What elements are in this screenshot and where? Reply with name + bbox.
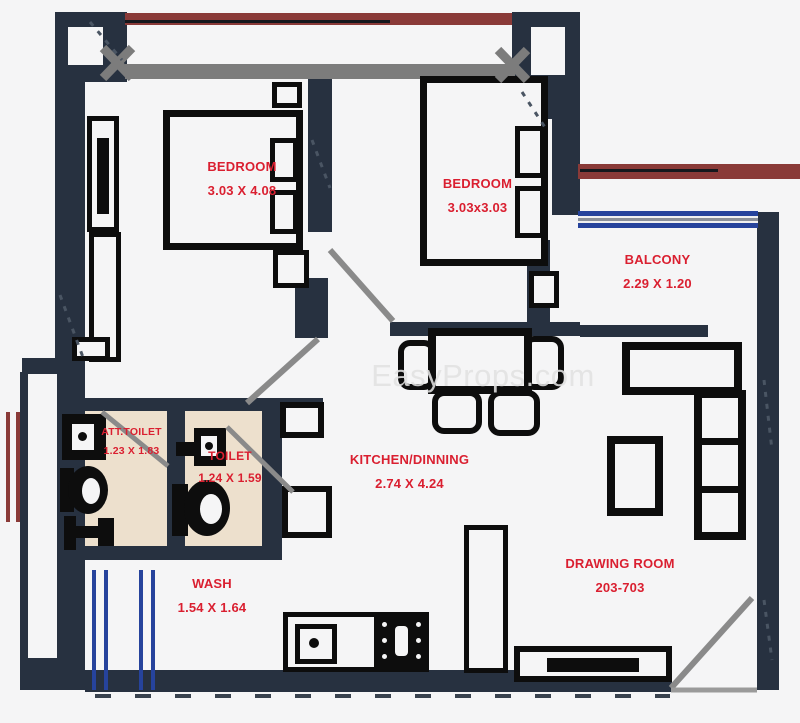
hall-door-swing [247, 339, 318, 403]
bedroom1-headboard-box [272, 82, 302, 108]
wall-toilets-bottom [85, 546, 282, 560]
dining-chair-bottom-2 [488, 390, 540, 436]
room-label-bedroom-1: BEDROOM 3.03 X 4.08 [160, 155, 324, 203]
kitchen-platform [464, 525, 508, 673]
dining-chair-bottom-1 [432, 390, 482, 434]
bedroom1-side-table [273, 250, 309, 288]
room-label-bedroom-2: BEDROOM 3.03x3.03 [400, 172, 555, 220]
room-name: BEDROOM [160, 155, 324, 179]
sofa-horizontal [622, 342, 742, 395]
room-label-kitchen-dining: KITCHEN/DINNING 2.74 X 4.24 [312, 448, 507, 496]
maroon-beam-top [125, 13, 512, 25]
room-name: WASH [153, 572, 271, 596]
wall-bedroom2-right [552, 119, 580, 215]
att-toilet-mixer-stem [64, 516, 76, 550]
wall-right-outer [757, 212, 779, 690]
room-dims: 1.24 X 1.59 [180, 468, 280, 490]
room-dims: 2.29 X 1.20 [580, 272, 735, 296]
room-label-wash: WASH 1.54 X 1.64 [153, 572, 271, 620]
room-label-att-toilet: ATT.TOILET 1.23 X 1.83 [84, 423, 179, 461]
att-toilet-mixer-head [98, 518, 114, 546]
room-dims: 3.03 X 4.08 [160, 179, 324, 203]
sofa-cushion-divider-2 [699, 486, 741, 493]
stove-burner-2 [382, 638, 387, 643]
wall-balcony-bottom [580, 325, 708, 337]
room-dims: 3.03x3.03 [400, 196, 555, 220]
coffee-table [607, 436, 663, 516]
wall-bottom-left-corner [20, 658, 57, 690]
room-dims: 1.54 X 1.64 [153, 596, 271, 620]
stove-burner-5 [416, 638, 421, 643]
stove-burner-6 [416, 654, 421, 659]
room-name: DRAWING ROOM [535, 552, 705, 576]
room-name: ATT.TOILET [84, 423, 179, 442]
toilet-wc-hole [200, 494, 222, 524]
window-top-left [68, 27, 103, 65]
room-name: TOILET [180, 446, 280, 468]
balcony-window-blue [578, 211, 758, 228]
room-dims: 2.74 X 4.24 [312, 472, 507, 496]
tv-unit-screen [547, 658, 639, 672]
room-label-drawing-room: DRAWING ROOM 203-703 [535, 552, 705, 600]
wash-window-blue-1 [92, 570, 108, 690]
stove-burner-1 [382, 622, 387, 627]
kitchen-appliance-upper [280, 402, 324, 438]
room-label-balcony: BALCONY 2.29 X 1.20 [580, 248, 735, 296]
maroon-beam-right-line [580, 169, 718, 172]
maroon-window-left [6, 412, 20, 522]
window-top-right [531, 27, 565, 75]
hatch-marks [95, 694, 670, 698]
floor-plan: BEDROOM 3.03 X 4.08 BEDROOM 3.03x3.03 BA… [0, 0, 800, 723]
sofa-cushion-divider-1 [699, 438, 741, 445]
maroon-beam-top-line [125, 20, 390, 23]
wall-left-upper [55, 80, 85, 365]
room-name: KITCHEN/DINNING [312, 448, 507, 472]
stove-burner-4 [416, 622, 421, 627]
bedroom2-side-table [529, 271, 559, 308]
kitchen-sink-drain [309, 638, 319, 648]
wall-left-outer-thin [20, 372, 28, 672]
room-label-toilet: TOILET 1.24 X 1.59 [180, 446, 280, 489]
stove-burner-3 [382, 654, 387, 659]
bedroom1-door-swing [330, 250, 393, 321]
att-toilet-wc-hole [82, 478, 100, 504]
main-door-swing [671, 598, 752, 688]
bedroom1-wardrobe-door [97, 138, 109, 214]
stove-center-plate [395, 626, 408, 656]
room-dims: 203-703 [535, 576, 705, 600]
wall-wash-left [57, 556, 85, 690]
entry-door-leaf [72, 337, 110, 361]
bedroom2-pillow-1 [515, 126, 545, 178]
sofa-vertical [694, 390, 746, 540]
room-name: BEDROOM [400, 172, 555, 196]
balcony-window-track [578, 218, 758, 221]
room-name: BALCONY [580, 248, 735, 272]
room-dims: 1.23 X 1.83 [84, 442, 179, 461]
watermark: EasyProps.com [358, 358, 608, 394]
